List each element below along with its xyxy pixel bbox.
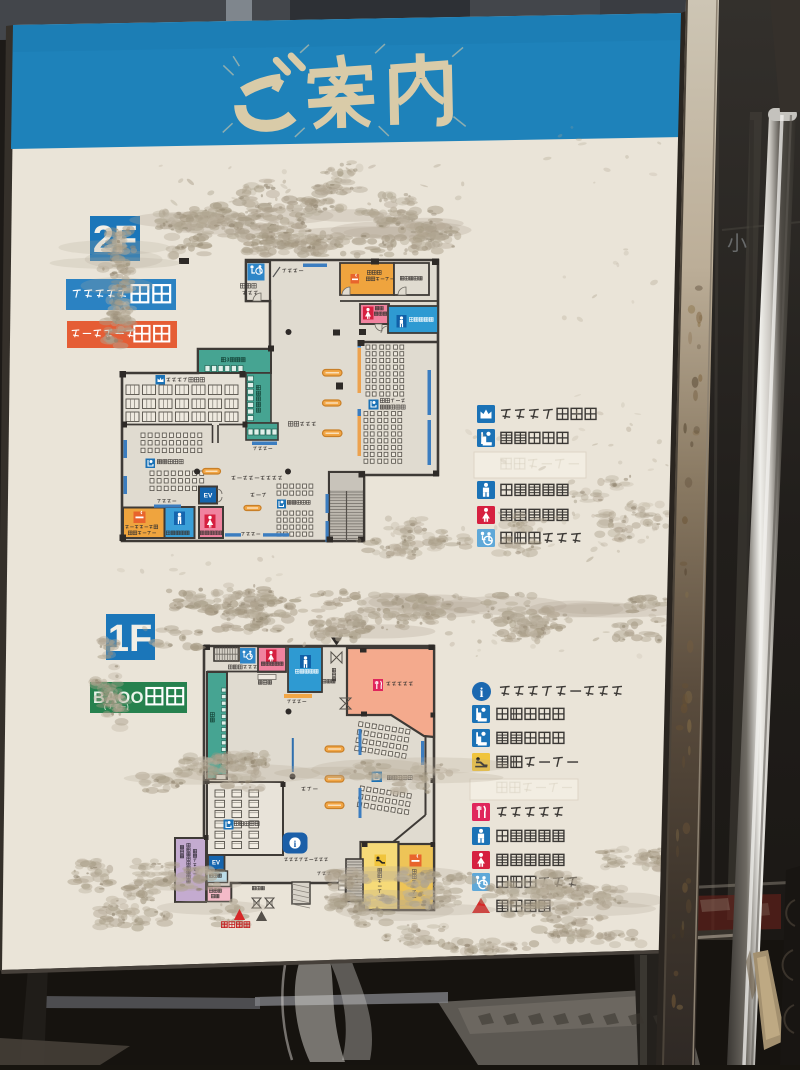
svg-text:小: 小 xyxy=(727,232,747,255)
svg-text:i: i xyxy=(294,840,297,850)
svg-text:i: i xyxy=(480,685,484,700)
svg-text:3: 3 xyxy=(226,357,229,363)
svg-text:EV: EV xyxy=(212,861,220,867)
svg-text:EV: EV xyxy=(204,493,213,500)
